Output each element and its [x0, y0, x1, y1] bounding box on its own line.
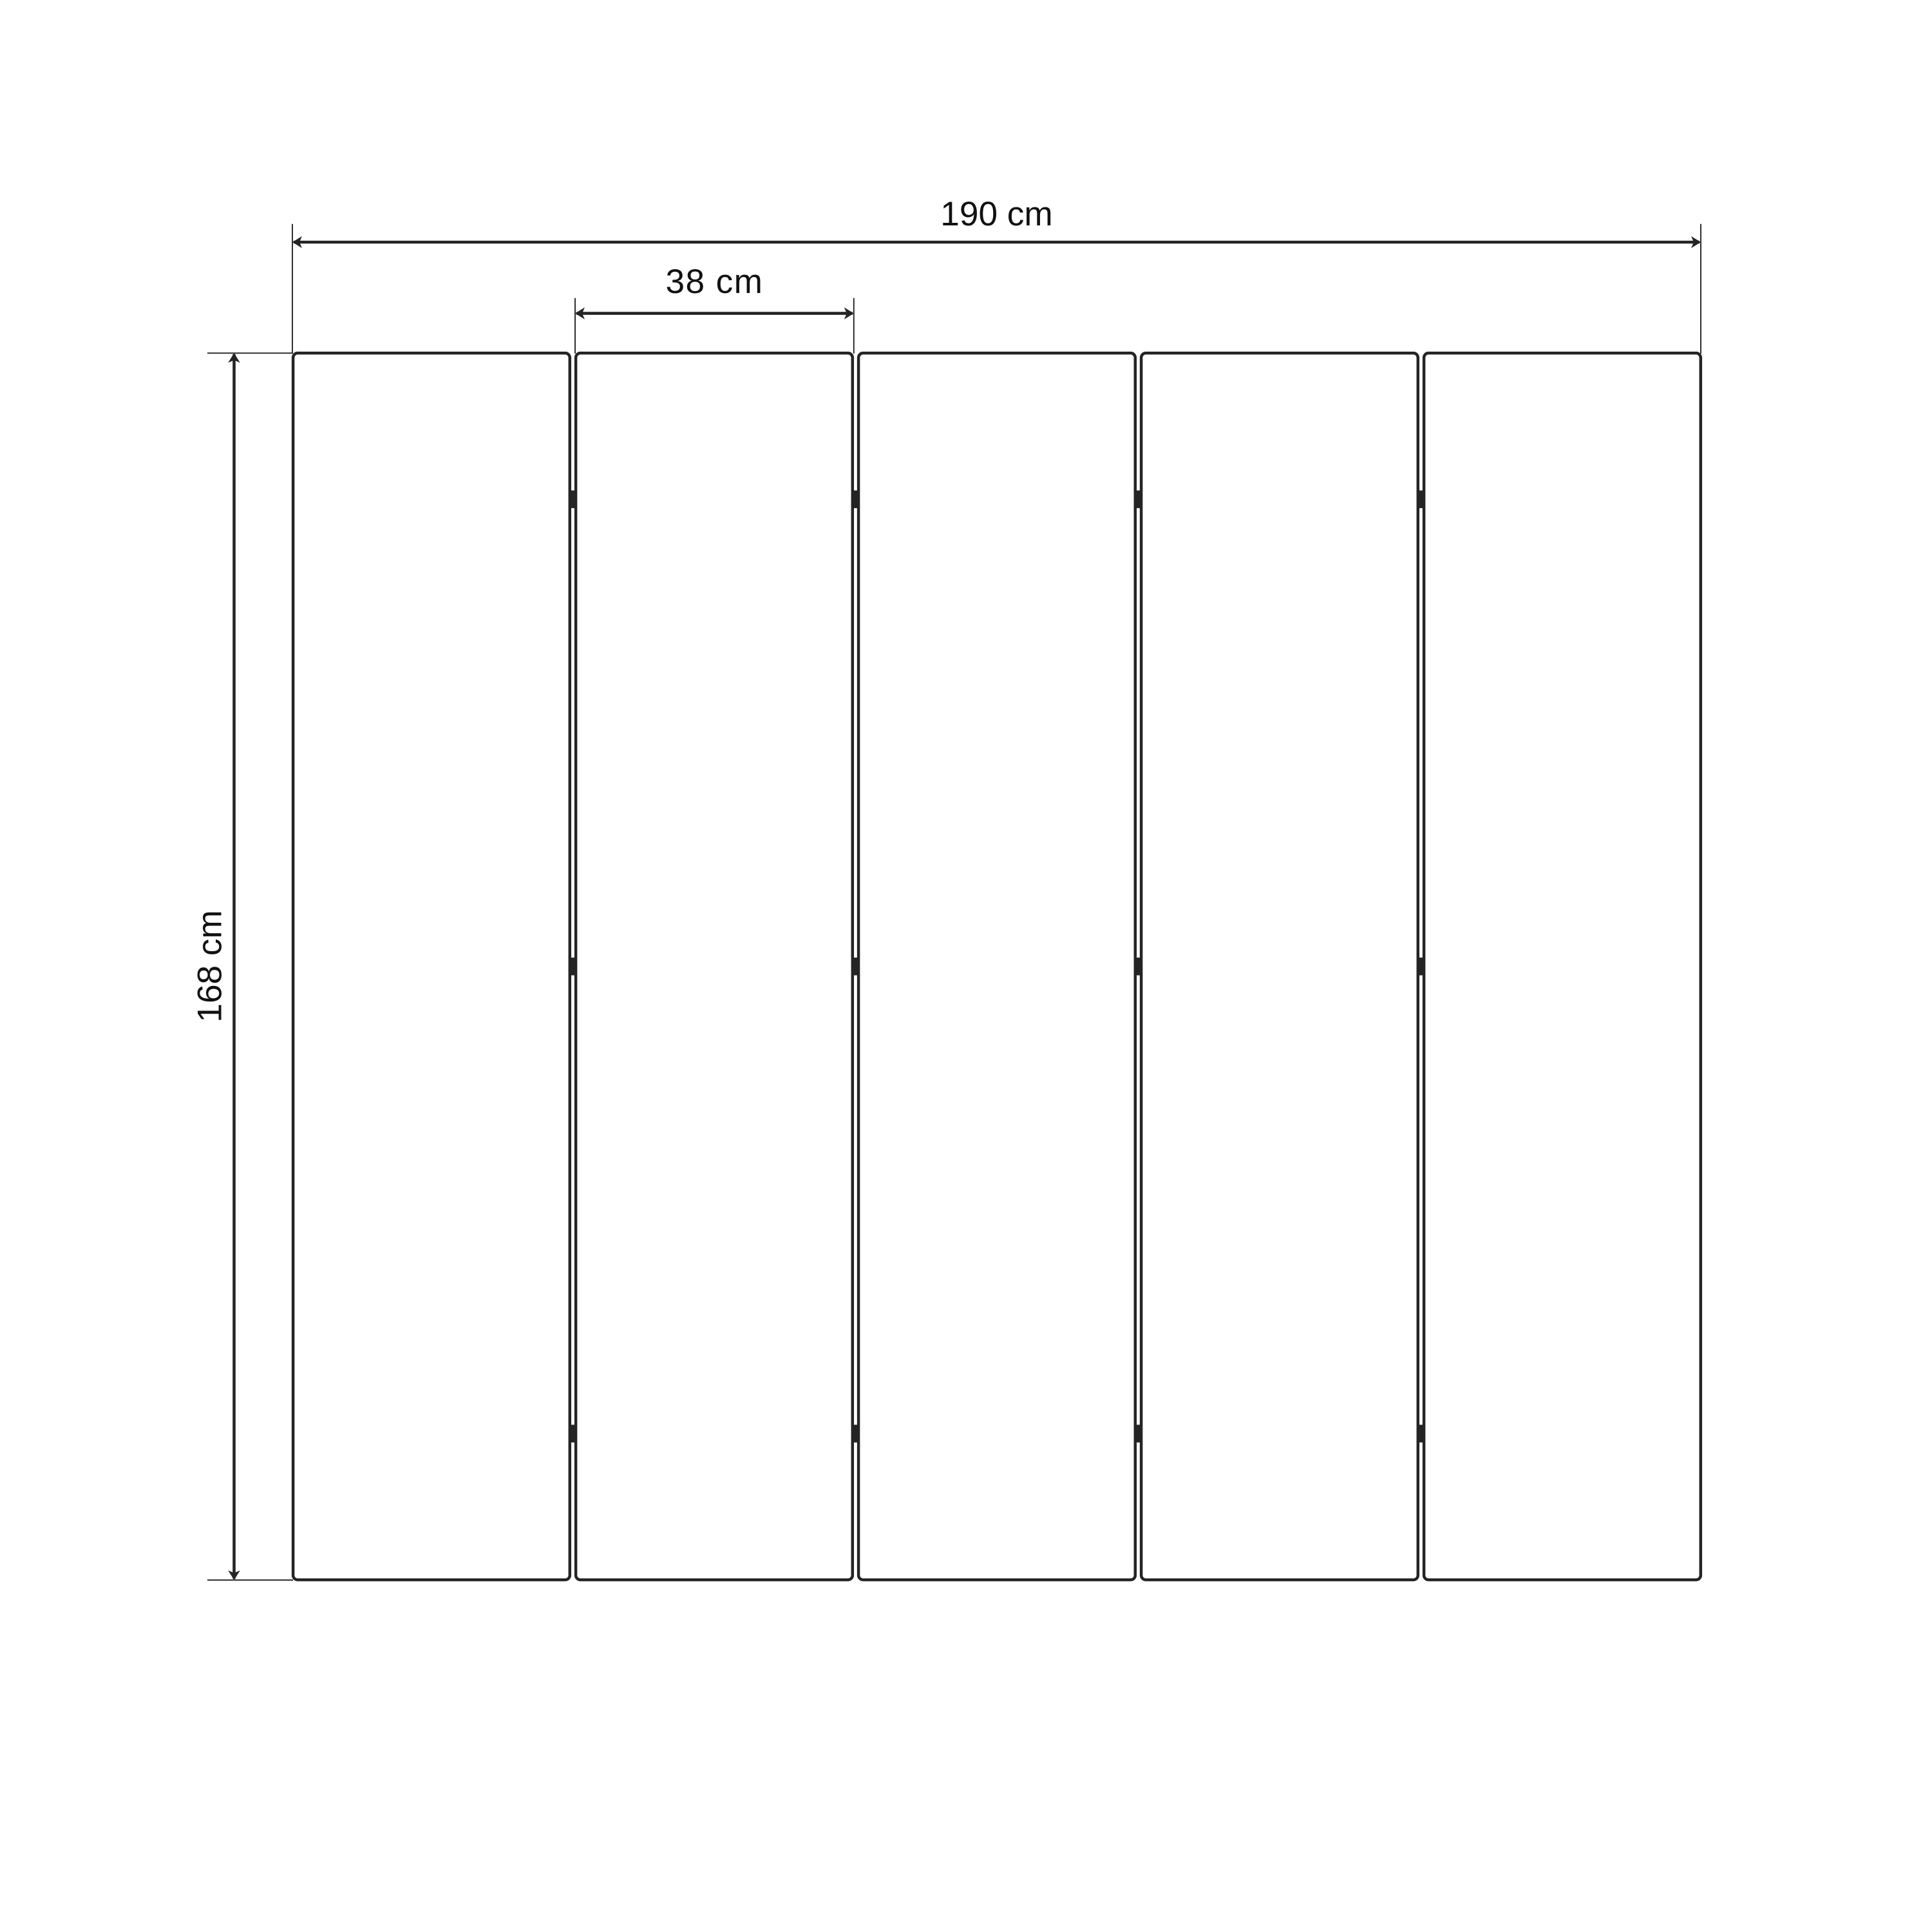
svg-text:38 cm: 38 cm [665, 263, 763, 301]
svg-text:168 cm: 168 cm [191, 910, 229, 1022]
svg-text:190 cm: 190 cm [940, 195, 1052, 233]
